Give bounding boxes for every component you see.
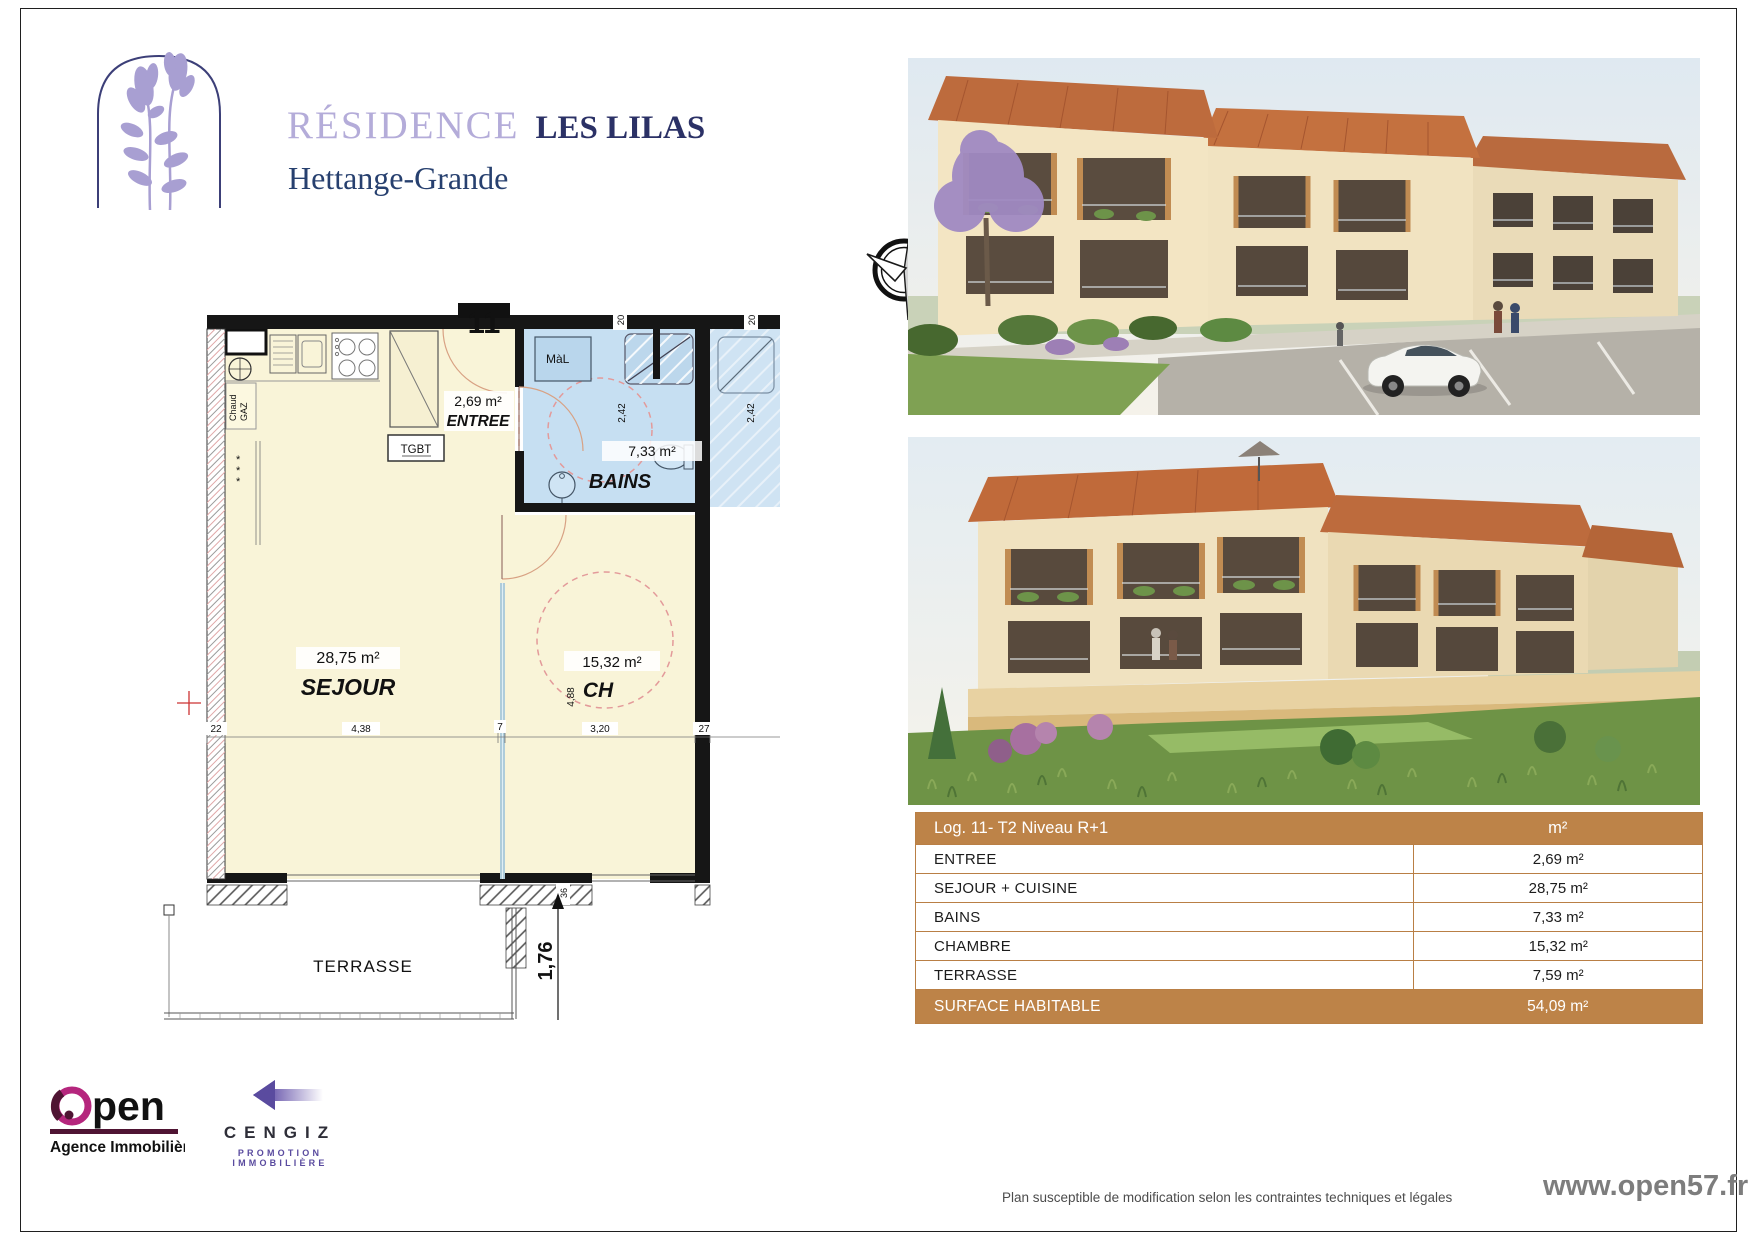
svg-text:36: 36 xyxy=(559,888,569,898)
terrace-label: TERRASSE xyxy=(313,957,413,976)
cengiz-logo: CENGIZ PROMOTION IMMOBILIÈRE xyxy=(195,1078,365,1168)
table-total-row: SURFACE HABITABLE 54,09 m² xyxy=(916,989,1702,1023)
lilac-branch xyxy=(119,51,198,210)
cengiz-tagline: PROMOTION IMMOBILIÈRE xyxy=(195,1148,365,1168)
svg-text:7,33 m²: 7,33 m² xyxy=(628,443,676,459)
washing-machine-label: MàL xyxy=(546,352,570,366)
table-unit: m² xyxy=(1413,819,1702,838)
svg-text:28,75 m²: 28,75 m² xyxy=(316,650,380,667)
svg-text:2,42: 2,42 xyxy=(746,403,757,423)
table-row: SEJOUR + CUISINE 28,75 m² xyxy=(916,873,1702,902)
terrace: TERRASSE xyxy=(164,905,516,1019)
svg-text:BAINS: BAINS xyxy=(589,471,652,493)
table-row: TERRASSE 7,59 m² xyxy=(916,960,1702,989)
title-city: Hettange-Grande xyxy=(288,160,508,197)
svg-text:22: 22 xyxy=(210,724,222,735)
cengiz-wordmark: CENGIZ xyxy=(195,1123,365,1143)
title-residence: RÉSIDENCE xyxy=(287,104,520,147)
svg-text:2,42: 2,42 xyxy=(617,403,628,423)
website-url: www.open57.fr xyxy=(1543,1170,1748,1203)
bottom-wall-hatched xyxy=(207,885,710,968)
legal-disclaimer: Plan susceptible de modification selon l… xyxy=(1002,1190,1452,1205)
electrical-panel-label: TGBT xyxy=(401,444,432,456)
svg-text:SEJOUR: SEJOUR xyxy=(301,674,396,700)
svg-text:20: 20 xyxy=(747,315,758,326)
svg-text:1,76: 1,76 xyxy=(535,942,557,981)
plan-sheet: RÉSIDENCELES LILAS Hettange-Grande N xyxy=(0,0,1755,1241)
svg-text:7: 7 xyxy=(497,722,503,733)
lilas-logo xyxy=(88,42,230,212)
svg-text:4,88: 4,88 xyxy=(566,687,577,707)
table-row: ENTREE 2,69 m² xyxy=(916,844,1702,873)
svg-text:*: * xyxy=(236,476,241,488)
rendering-photo-street xyxy=(908,58,1700,415)
svg-text:ENTREE: ENTREE xyxy=(447,413,511,430)
open-wordmark: pen xyxy=(92,1083,165,1129)
table-title: Log. 11- T2 Niveau R+1 xyxy=(916,819,1413,838)
areas-table: Log. 11- T2 Niveau R+1 m² ENTREE 2,69 m²… xyxy=(915,812,1703,1024)
table-row: BAINS 7,33 m² xyxy=(916,902,1702,931)
entry-closet xyxy=(390,331,438,427)
svg-text:CH: CH xyxy=(583,679,614,702)
boiler-label-1: Chaud xyxy=(228,394,238,421)
unit-number: 11 xyxy=(468,305,501,340)
svg-text:2,69 m²: 2,69 m² xyxy=(454,393,502,409)
svg-text:20: 20 xyxy=(616,315,627,326)
cengiz-icon xyxy=(235,1078,325,1112)
svg-text:15,32 m²: 15,32 m² xyxy=(582,654,641,671)
rendering-photo-garden xyxy=(908,437,1700,805)
floor-plan: Chaud GAZ * * * TGBT MàL xyxy=(150,245,780,1045)
open-agency-logo: pen Agence Immobilière xyxy=(50,1082,185,1162)
svg-text:4,38: 4,38 xyxy=(351,724,371,735)
title-name: LES LILAS xyxy=(536,110,706,146)
svg-text:27: 27 xyxy=(698,724,710,735)
page-title: RÉSIDENCELES LILAS xyxy=(287,103,705,148)
table-row: CHAMBRE 15,32 m² xyxy=(916,931,1702,960)
areas-table-header: Log. 11- T2 Niveau R+1 m² xyxy=(916,813,1702,844)
svg-text:3,20: 3,20 xyxy=(590,724,610,735)
survey-cross xyxy=(177,691,201,715)
open-tagline: Agence Immobilière xyxy=(50,1139,185,1156)
boiler-label-2: GAZ xyxy=(239,402,249,421)
